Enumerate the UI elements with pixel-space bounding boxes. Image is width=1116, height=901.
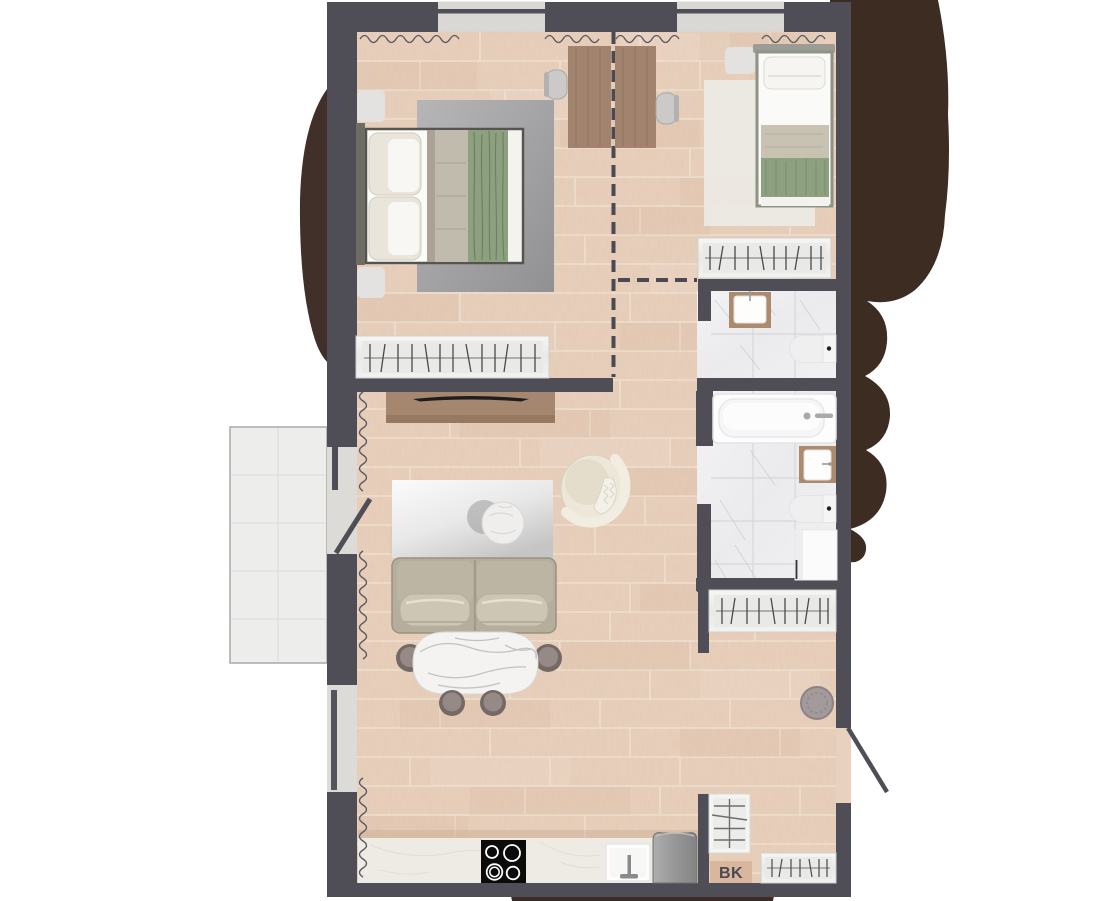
svg-text:BK: BK	[719, 865, 743, 882]
